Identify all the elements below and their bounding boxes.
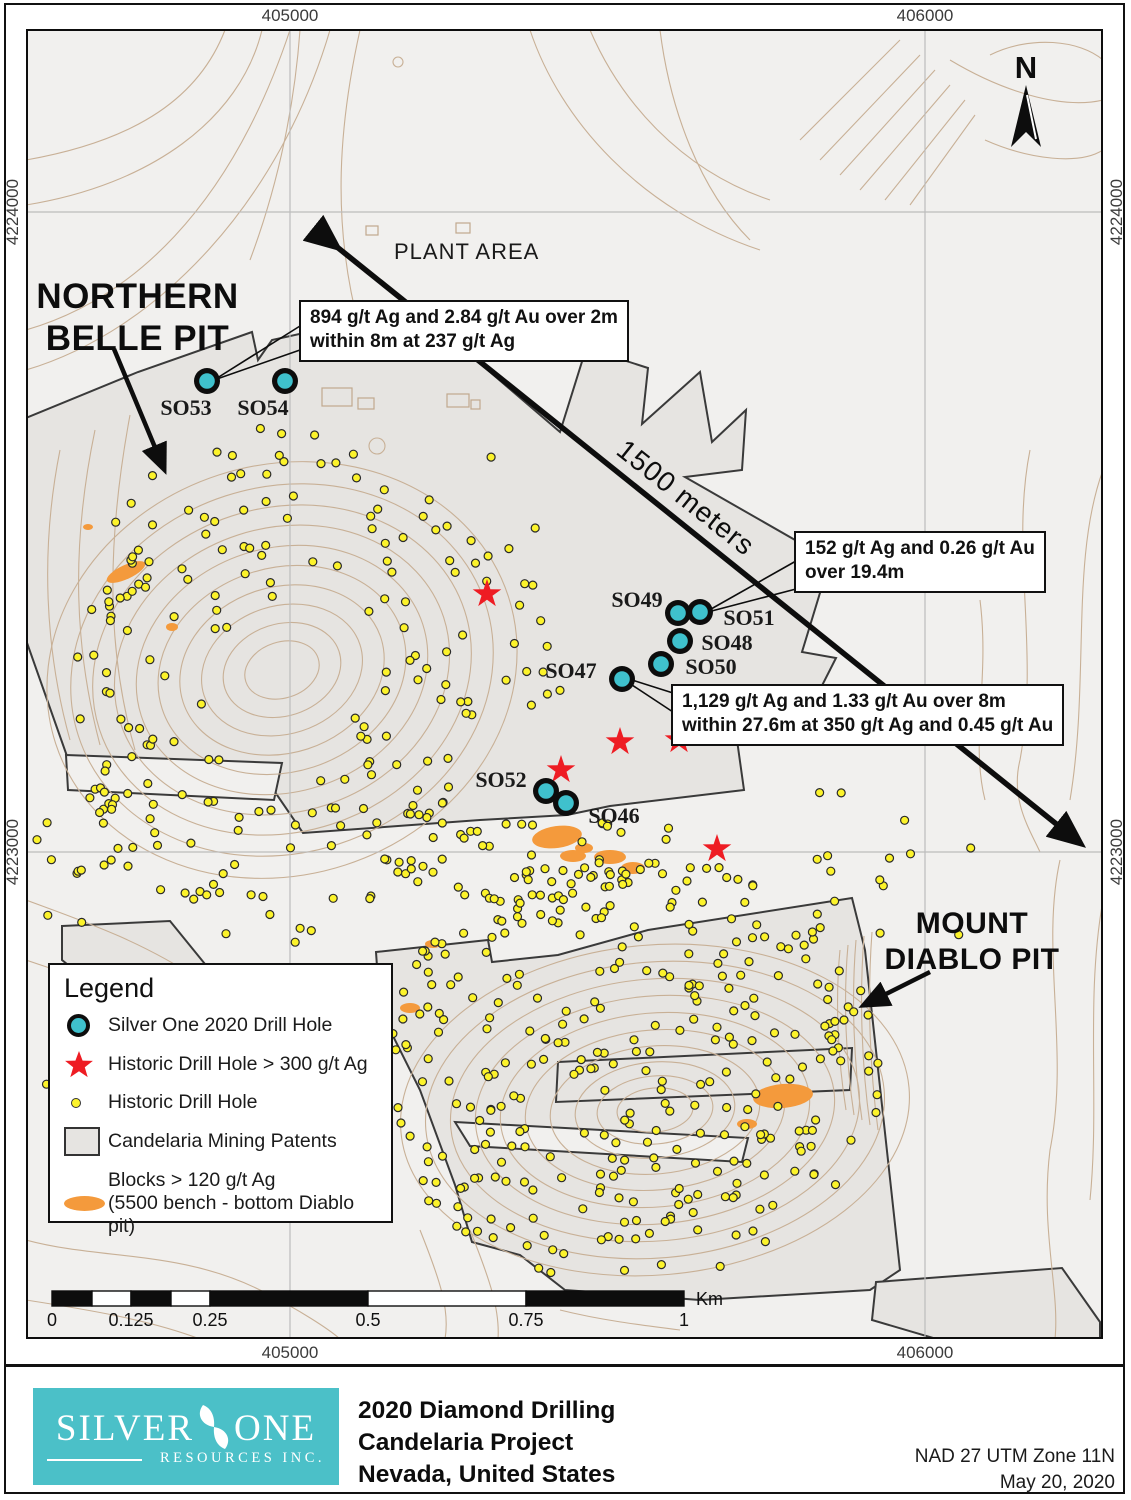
legend-item-mining-patents: Candelaria Mining Patents <box>64 1127 379 1156</box>
map-title-line2: Candelaria Project <box>358 1427 615 1459</box>
grid-coordinate-label: 4224000 <box>3 179 23 245</box>
map-title-line1: 2020 Diamond Drilling <box>358 1395 615 1427</box>
patent-swatch-icon <box>64 1127 108 1156</box>
grid-coordinate-label: 4224000 <box>1107 179 1127 245</box>
logo-word-silver: SILVER <box>56 1407 194 1450</box>
grid-coordinate-label: 4223000 <box>3 819 23 885</box>
map-title-line3: Nevada, United States <box>358 1459 615 1491</box>
legend-title: Legend <box>64 973 379 1004</box>
map-sheet: 1500 meters SO53SO54SO49SO51SO48SO50SO47… <box>0 0 1131 1500</box>
map-title: 2020 Diamond Drilling Candelaria Project… <box>358 1395 615 1491</box>
block-icon <box>64 1196 108 1211</box>
plant-area-label: PLANT AREA <box>394 239 539 265</box>
star-icon <box>64 1050 108 1078</box>
logo-subtitle: RESOURCES INC. <box>160 1450 325 1467</box>
northern-belle-pit-label: NORTHERN BELLE PIT <box>25 276 250 360</box>
logo-word-one: ONE <box>234 1407 316 1450</box>
silver-one-logo: SILVER ONE RESOURCES INC. <box>33 1388 339 1485</box>
legend-item-historic-high-grade: Historic Drill Hole > 300 g/t Ag <box>64 1050 379 1078</box>
silver-one-emblem-icon <box>196 1404 232 1452</box>
legend-item-historic-drill-hole: Historic Drill Hole <box>64 1091 379 1114</box>
date-label: May 20, 2020 <box>915 1470 1115 1496</box>
legend: Legend Silver One 2020 Drill Hole Histor… <box>48 963 393 1223</box>
mount-diablo-pit-label: MOUNT DIABLO PIT <box>848 906 1096 978</box>
north-label: N <box>1000 52 1052 83</box>
north-arrow: N <box>1000 52 1052 154</box>
annotation-so53: 894 g/t Ag and 2.84 g/t Au over 2m withi… <box>299 300 629 362</box>
map-metadata: NAD 27 UTM Zone 11N May 20, 2020 <box>915 1444 1115 1495</box>
annotation-so47: 1,129 g/t Ag and 1.33 g/t Au over 8m wit… <box>671 684 1064 746</box>
drill-hole-icon <box>64 1014 108 1037</box>
grid-coordinate-label: 406000 <box>897 6 954 26</box>
page-border <box>4 3 1125 1494</box>
north-arrow-icon <box>1006 83 1046 149</box>
legend-item-high-grade-blocks: Blocks > 120 g/t Ag (5500 bench - bottom… <box>64 1169 379 1238</box>
grid-coordinate-label: 406000 <box>897 1343 954 1363</box>
dot-icon <box>64 1098 108 1108</box>
grid-coordinate-label: 405000 <box>262 1343 319 1363</box>
grid-coordinate-label: 4223000 <box>1107 819 1127 885</box>
annotation-so51: 152 g/t Ag and 0.26 g/t Au over 19.4m <box>794 531 1046 593</box>
grid-coordinate-label: 405000 <box>262 6 319 26</box>
legend-item-silver-one-drill-hole: Silver One 2020 Drill Hole <box>64 1014 379 1037</box>
footer-divider <box>4 1364 1125 1367</box>
datum-label: NAD 27 UTM Zone 11N <box>915 1444 1115 1470</box>
